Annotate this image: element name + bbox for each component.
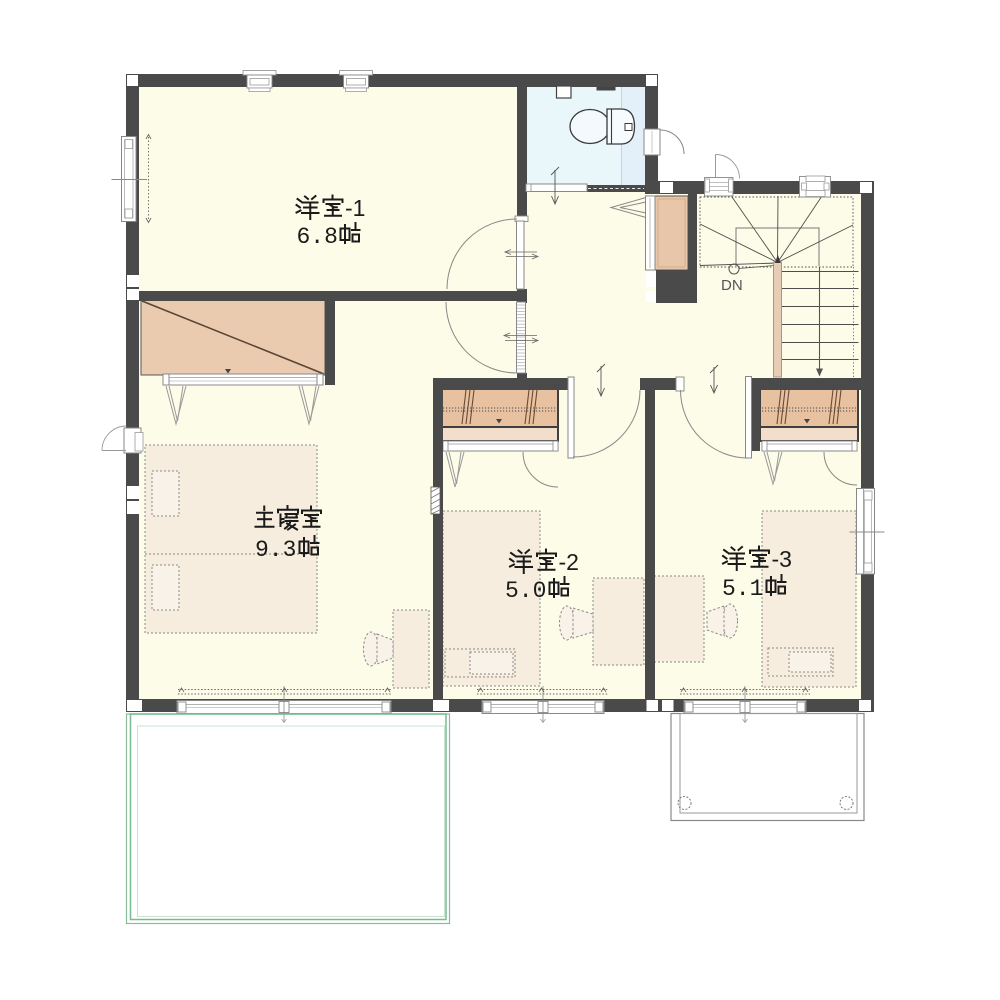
svg-text:9.3: 9.3 xyxy=(255,537,296,563)
svg-text:5.1: 5.1 xyxy=(722,576,763,602)
svg-text:-1: -1 xyxy=(345,195,365,221)
svg-text:5.0: 5.0 xyxy=(505,578,546,604)
svg-text:-3: -3 xyxy=(772,546,792,572)
svg-text:-2: -2 xyxy=(559,549,579,575)
svg-text:6.8: 6.8 xyxy=(297,224,338,250)
svg-text:DN: DN xyxy=(721,277,743,294)
